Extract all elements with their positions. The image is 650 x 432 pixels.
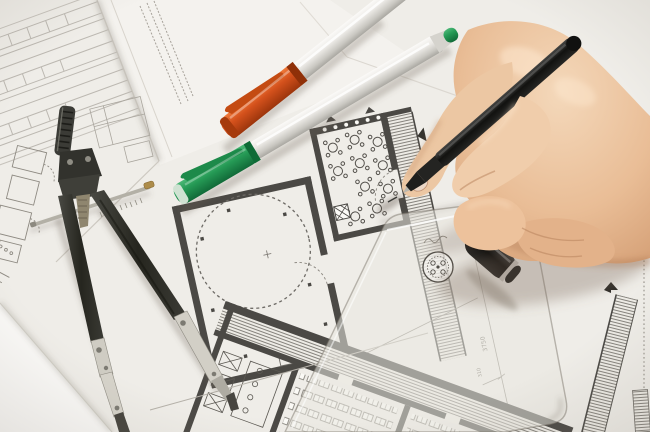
vignette (0, 0, 650, 432)
photo-canvas: 3750 310 (0, 0, 650, 432)
photo-architect-workspace: 3750 310 (0, 0, 650, 432)
